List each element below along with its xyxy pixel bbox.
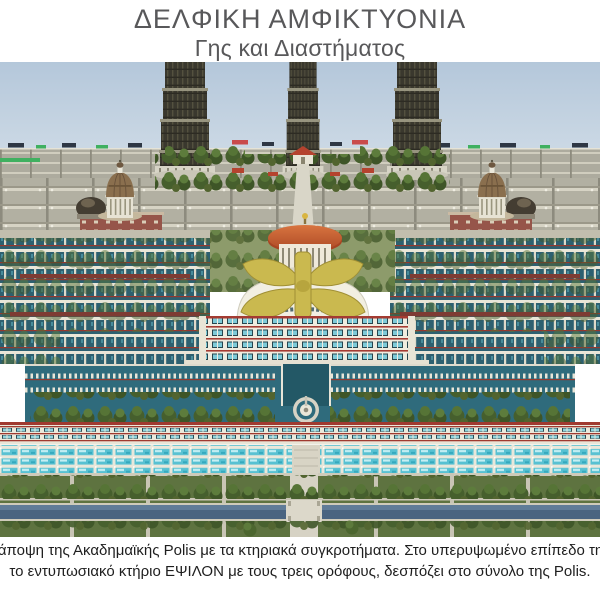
striped-colonnade-building — [0, 422, 600, 445]
epsilon-building — [237, 252, 369, 322]
page-subtitle: Γης και Διαστήματος — [0, 35, 600, 61]
polis-3d-render — [0, 62, 600, 537]
page: ΔΕΛΦΙΚΗ ΑΜΦΙΚΤΥΟΝΙΑ Γης και Διαστήματος — [0, 0, 600, 600]
bridge — [286, 500, 322, 522]
header: ΔΕΛΦΙΚΗ ΑΜΦΙΚΤΥΟΝΙΑ Γης και Διαστήματος — [0, 0, 600, 62]
render-image — [0, 62, 600, 537]
caption: νική άποψη της Ακαδημαϊκής Polis με τα κ… — [0, 540, 600, 582]
pools — [0, 445, 600, 473]
page-title: ΔΕΛΦΙΚΗ ΑΜΦΙΚΤΥΟΝΙΑ — [0, 4, 600, 34]
water-terrace — [25, 364, 575, 424]
lawn-gardens — [0, 473, 600, 537]
caption-line1: νική άποψη της Ακαδημαϊκής Polis με τα κ… — [0, 540, 600, 561]
caption-line2: το εντυπωσιακό κτήριο ΕΨΙΛΟΝ με τους τρε… — [0, 561, 600, 582]
